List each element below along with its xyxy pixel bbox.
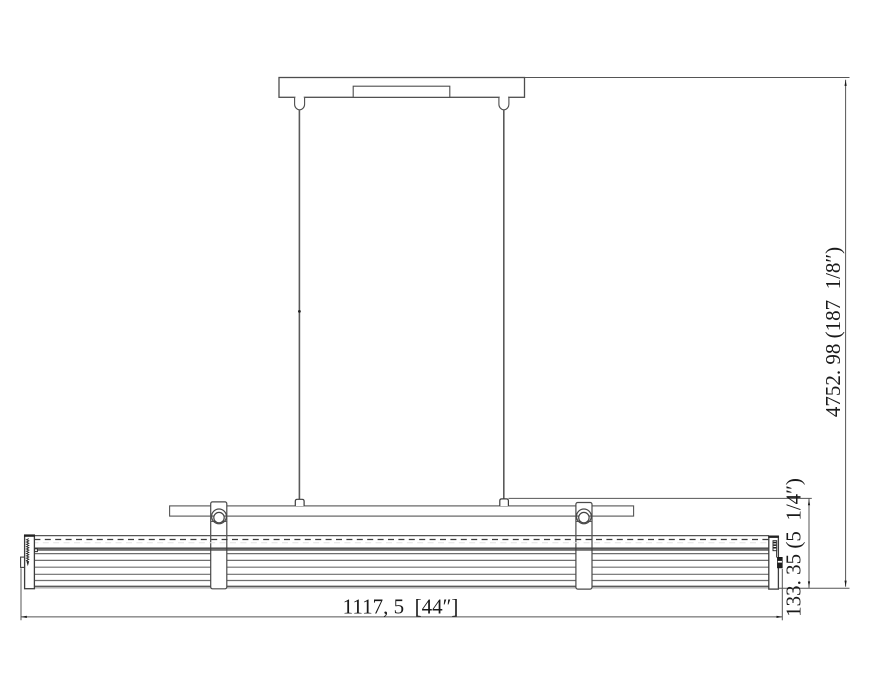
svg-text:133. 35 (5 1/4″): 133. 35 (5 1/4″) (782, 478, 806, 617)
svg-text:1117, 5 [44″]: 1117, 5 [44″] (343, 595, 459, 619)
svg-text:4752. 98 (187 1/8″): 4752. 98 (187 1/8″) (821, 247, 845, 417)
